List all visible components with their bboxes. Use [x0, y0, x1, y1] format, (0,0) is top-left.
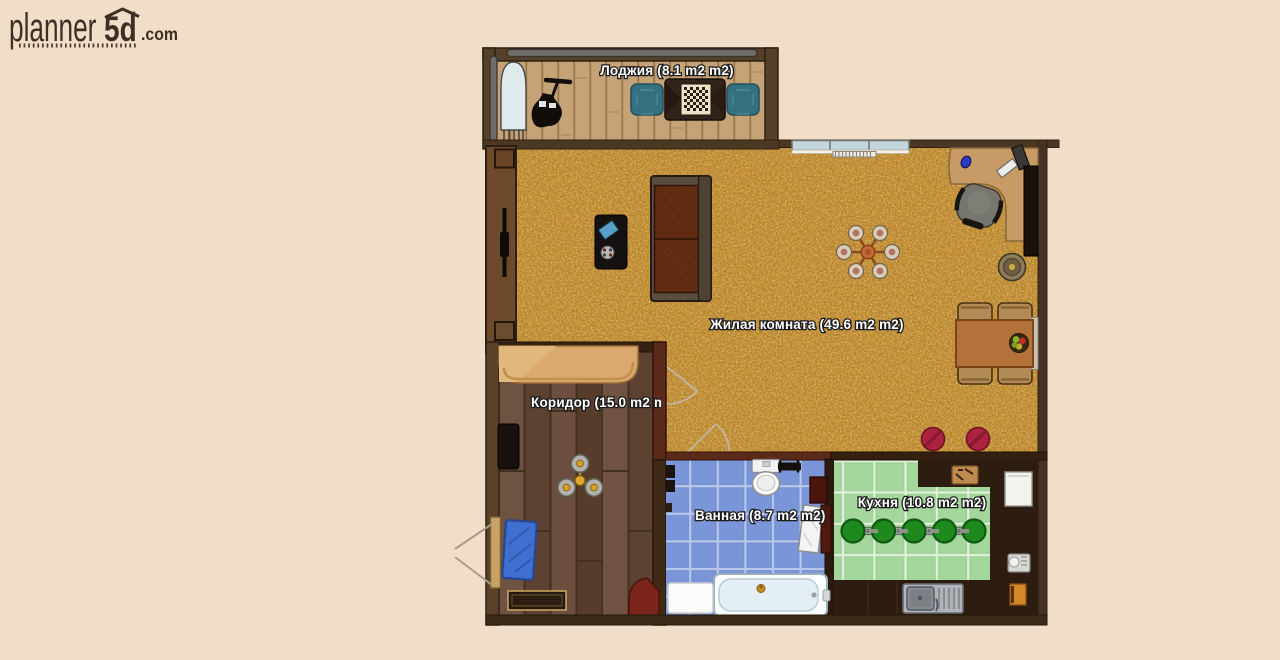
- svg-text:.com: .com: [141, 24, 178, 44]
- svg-text:Лоджия (8.1 m2 m2): Лоджия (8.1 m2 m2): [600, 63, 734, 78]
- svg-text:Коридор (15.0 m2 m2): Коридор (15.0 m2 m2): [531, 395, 679, 410]
- svg-text:Ванная (8.7 m2 m2): Ванная (8.7 m2 m2): [695, 508, 826, 523]
- svg-text:Жилая комната (49.6 m2 m2): Жилая комната (49.6 m2 m2): [709, 317, 903, 332]
- svg-text:Кухня (10.8 m2 m2): Кухня (10.8 m2 m2): [858, 495, 987, 510]
